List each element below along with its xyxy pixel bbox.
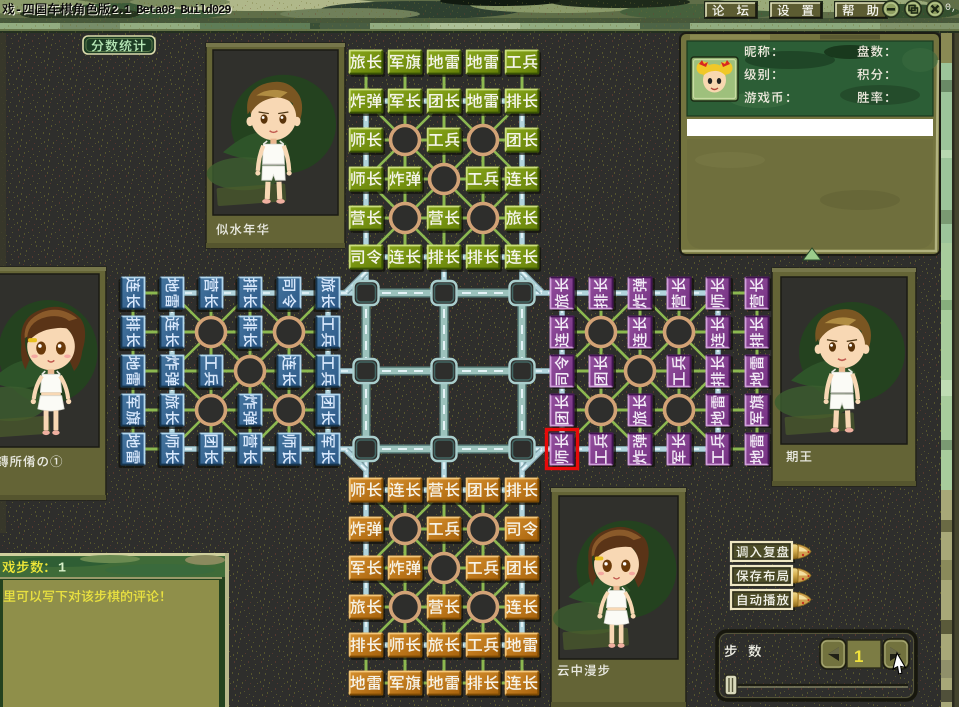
svg-text:2.1 Beta08 Build029: 2.1 Beta08 Build029 (111, 3, 231, 17)
svg-text:0,: 0, (945, 3, 957, 14)
svg-text:-: - (15, 3, 23, 17)
svg-text:1: 1 (854, 647, 863, 666)
svg-text:1: 1 (58, 562, 66, 577)
